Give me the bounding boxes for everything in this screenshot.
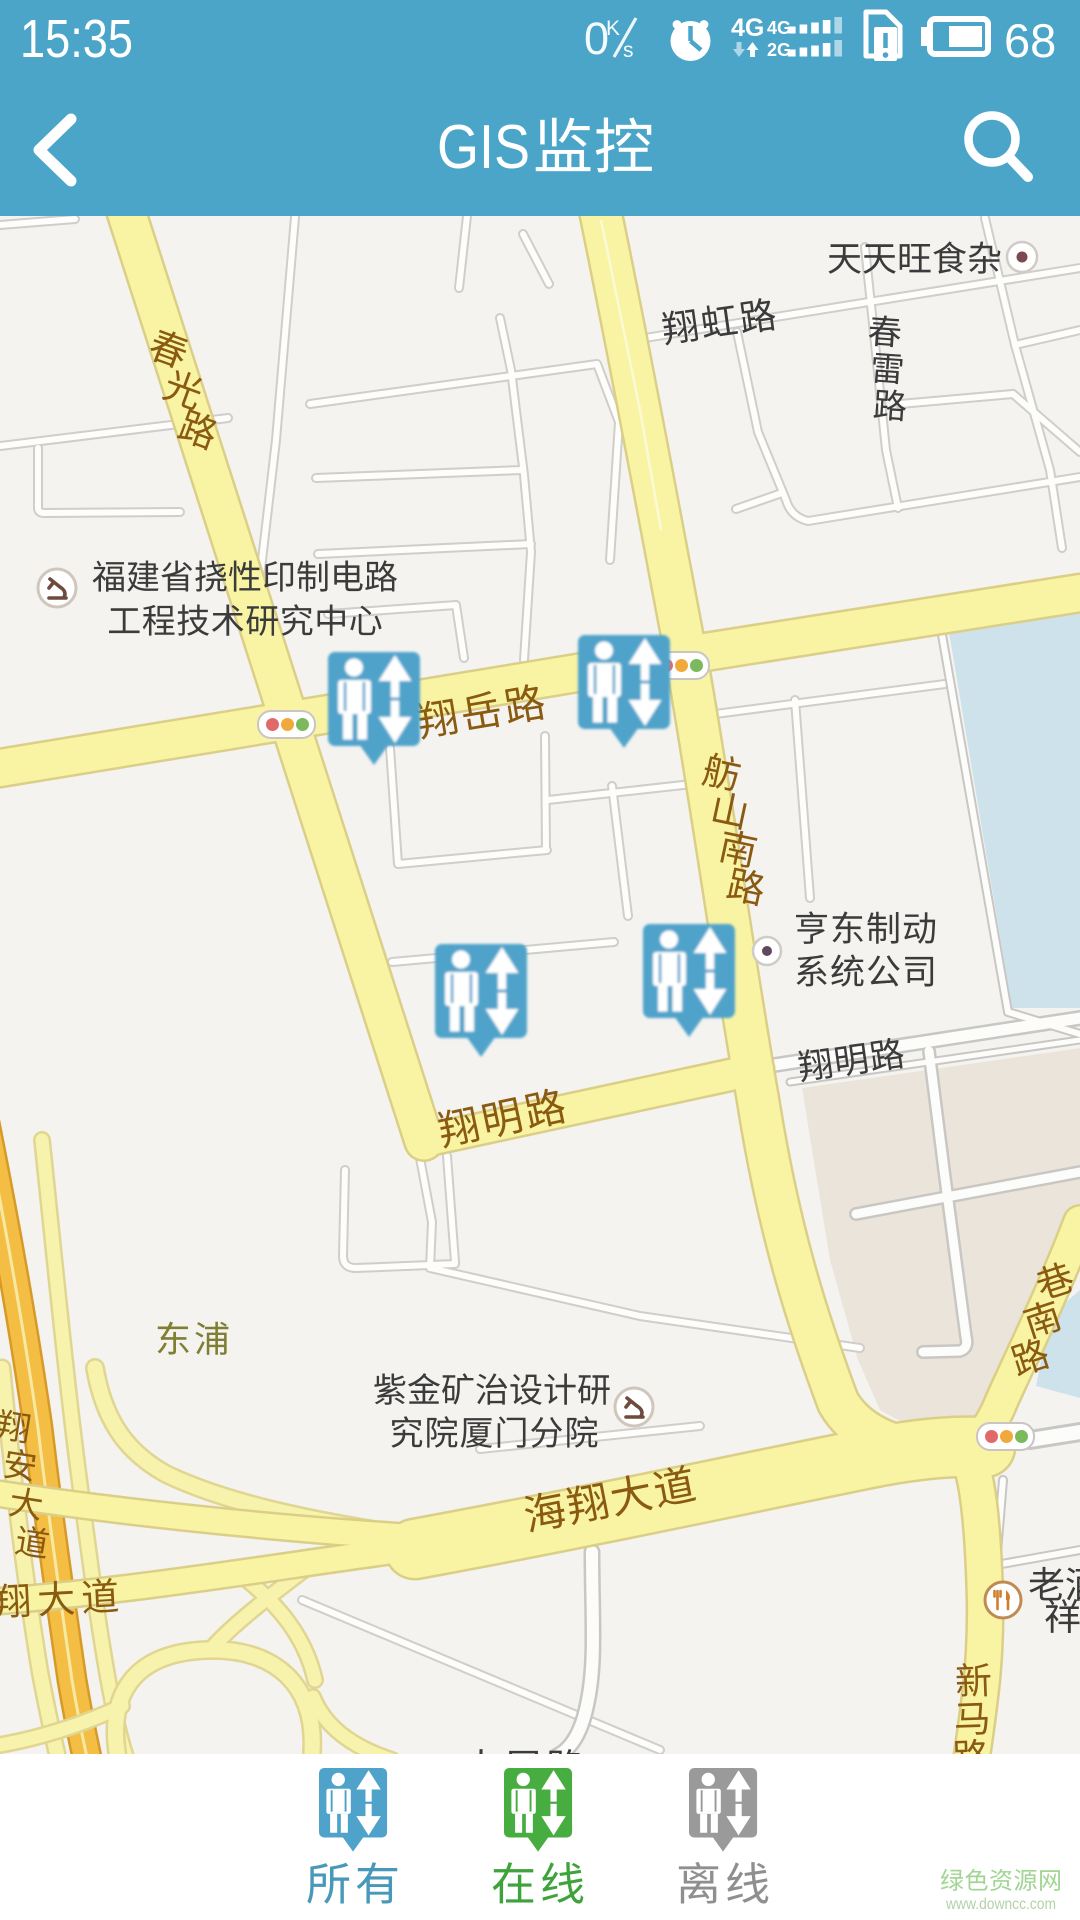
svg-text:4G: 4G xyxy=(767,18,791,38)
svg-text:15:35: 15:35 xyxy=(20,9,133,69)
svg-text:K: K xyxy=(606,17,620,40)
svg-text:4G: 4G xyxy=(731,14,764,42)
svg-text:s: s xyxy=(623,39,634,62)
svg-text:GIS: GIS xyxy=(437,113,530,182)
svg-text:www.downcc.com: www.downcc.com xyxy=(945,1896,1056,1913)
svg-text:68: 68 xyxy=(1004,14,1056,67)
svg-text:2G: 2G xyxy=(767,40,791,60)
